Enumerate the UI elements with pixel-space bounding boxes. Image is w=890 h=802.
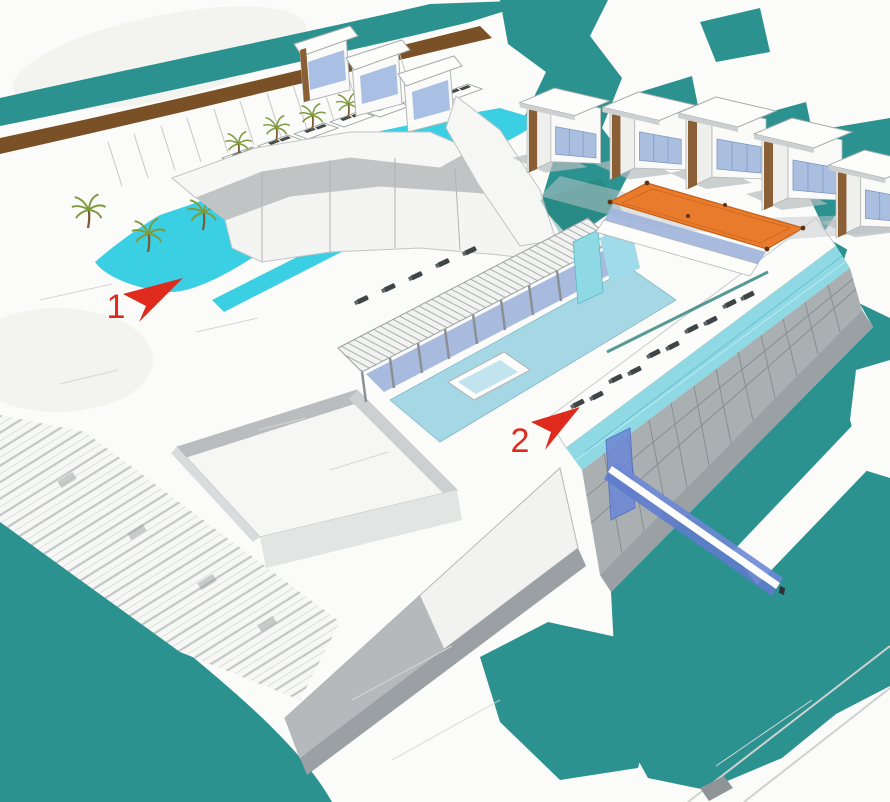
villa <box>512 88 610 173</box>
resort-masterplan-rendering: 1 2 <box>0 0 890 802</box>
marker-2-label: 2 <box>511 422 530 460</box>
water-feature-wall <box>573 230 603 304</box>
villa <box>595 92 696 179</box>
marker-1-label: 1 <box>107 288 126 326</box>
villa <box>670 97 776 189</box>
